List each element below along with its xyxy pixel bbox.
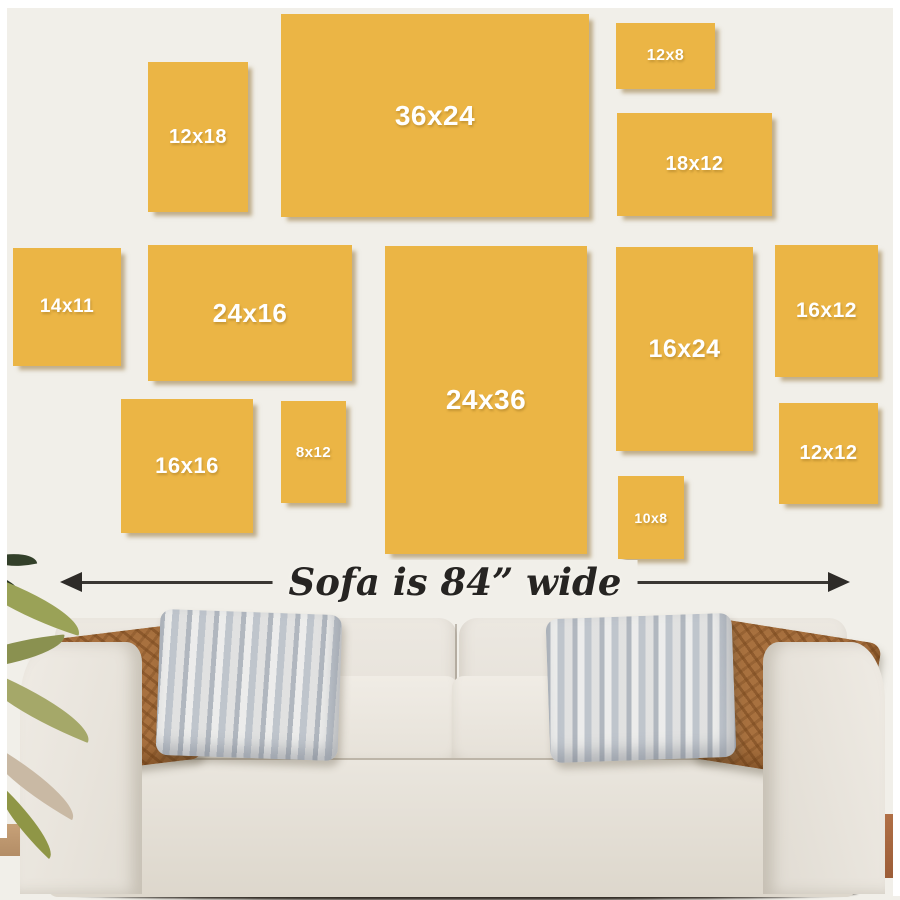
frame-12x8: 12x8	[616, 23, 715, 89]
photo-border-left	[0, 0, 7, 838]
frame-size-label: 14x11	[40, 296, 94, 318]
frame-36x24: 36x24	[281, 14, 589, 217]
frame-16x24: 16x24	[616, 247, 753, 451]
pillow-striped-right	[546, 613, 737, 763]
frame-16x12: 16x12	[775, 245, 878, 377]
frame-size-label: 8x12	[296, 444, 331, 461]
sofa-width-dimension: Sofa is 84” wide	[60, 556, 850, 608]
sofa-arm-right	[763, 642, 885, 894]
frame-size-label: 16x12	[796, 299, 857, 323]
frame-size-label: 16x24	[648, 335, 720, 364]
frame-10x8: 10x8	[618, 476, 684, 559]
frame-size-label: 12x12	[799, 442, 857, 465]
pillow-striped-left	[156, 609, 343, 761]
frame-16x16: 16x16	[121, 399, 253, 533]
frame-size-label: 16x16	[155, 453, 219, 479]
sofa-width-label: Sofa is 84” wide	[273, 560, 638, 604]
arrow-right-icon	[828, 572, 850, 592]
sofa-back-seam	[455, 624, 457, 684]
frame-8x12: 8x12	[281, 401, 346, 503]
frame-24x16: 24x16	[148, 245, 352, 381]
frame-size-label: 36x24	[395, 100, 475, 132]
frame-size-label: 12x18	[169, 126, 227, 149]
sofa-base	[48, 758, 856, 897]
photo-border-right	[893, 0, 900, 896]
frame-size-label: 24x16	[213, 298, 288, 329]
wall-art-size-guide: 12x1836x2412x818x1214x1124x1624x3616x241…	[0, 0, 900, 900]
frame-24x36: 24x36	[385, 246, 587, 554]
frame-12x18: 12x18	[148, 62, 248, 212]
frame-size-label: 24x36	[446, 384, 526, 416]
frame-size-label: 12x8	[647, 47, 685, 65]
photo-border-top	[0, 0, 900, 8]
frame-size-label: 18x12	[665, 153, 723, 176]
sofa-arm-left	[20, 642, 142, 894]
frame-size-label: 10x8	[634, 510, 667, 526]
frame-14x11: 14x11	[13, 248, 121, 366]
arrow-left-icon	[60, 572, 82, 592]
frame-12x12: 12x12	[779, 403, 878, 504]
frame-18x12: 18x12	[617, 113, 772, 216]
